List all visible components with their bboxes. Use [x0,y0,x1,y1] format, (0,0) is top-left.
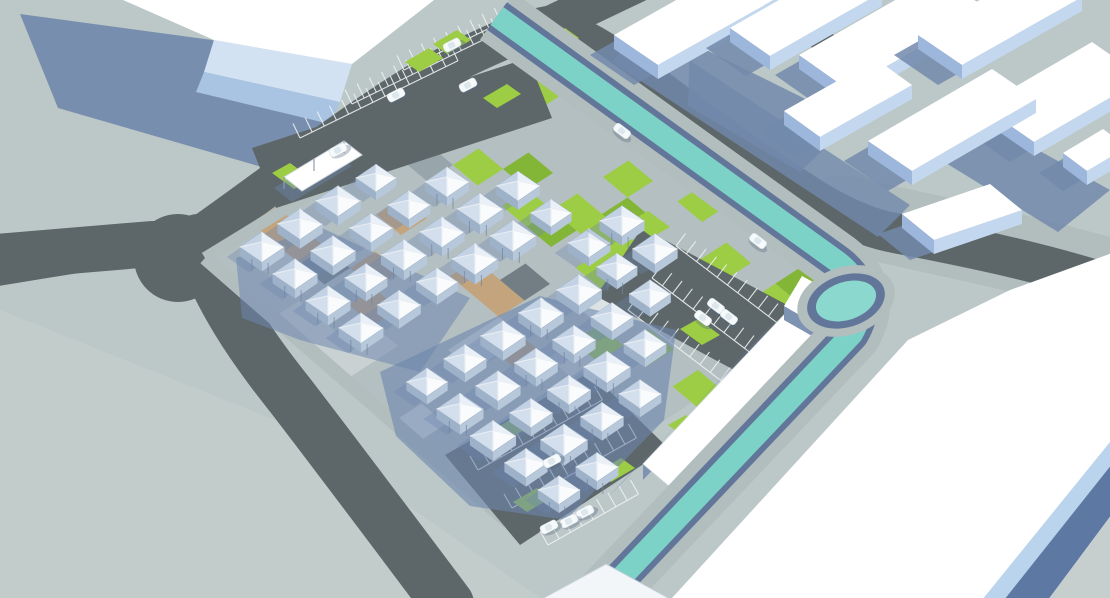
west-road [0,244,152,258]
render-canvas [0,0,1110,598]
aerial-architectural-render: Aerial 3D architectural render: modular … [0,0,1110,598]
